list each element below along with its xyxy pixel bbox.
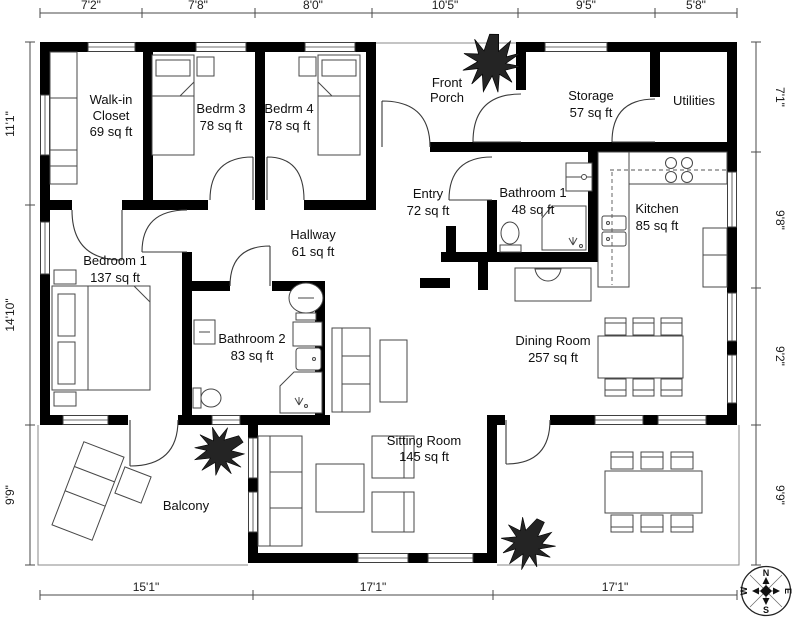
- sink-icon: [566, 163, 592, 191]
- room-label-bedrm3: Bedrm 3: [196, 101, 245, 116]
- dim-label: 9'5": [576, 0, 596, 12]
- room-area-bathroom1: 48 sq ft: [512, 202, 555, 217]
- room-label-porch: Front: [432, 75, 463, 90]
- patio-table-icon: [605, 452, 702, 532]
- room-label-bathroom1: Bathroom 1: [499, 185, 566, 200]
- dimension-right: 7'1" 9'8" 9'2" 9'9": [751, 42, 787, 565]
- side-table-icon: [115, 467, 151, 503]
- coffee-table-icon: [316, 464, 364, 512]
- room-area-entry: 72 sq ft: [407, 203, 450, 218]
- fridge-icon: [703, 228, 727, 287]
- room-label-porch: Porch: [430, 90, 464, 105]
- bed-icon-bedroom1: [52, 270, 150, 406]
- room-label-bedroom1: Bedroom 1: [83, 253, 147, 268]
- window: [196, 43, 246, 52]
- dim-label: 15'1": [133, 580, 160, 594]
- room-label-dining: Dining Room: [515, 333, 590, 348]
- window: [41, 222, 50, 274]
- door-bathroom1: [449, 157, 492, 200]
- bed-icon-bedrm4: [318, 55, 360, 155]
- compass-rose: N E S W: [739, 567, 793, 616]
- window: [63, 416, 108, 425]
- room-label-bedrm4: Bedrm 4: [264, 101, 313, 116]
- lounge-chair-icon: [52, 442, 124, 540]
- dim-label: 11'1": [3, 111, 17, 137]
- dim-label: 7'1": [773, 87, 787, 107]
- dimension-bottom: 15'1" 17'1" 17'1": [40, 580, 737, 600]
- cabinet-icon: [293, 322, 322, 346]
- room-area-bathroom2: 83 sq ft: [231, 348, 274, 363]
- room-area-sitting: 145 sq ft: [399, 449, 449, 464]
- dim-label: 9'9": [773, 485, 787, 505]
- dim-label: 7'8": [188, 0, 208, 12]
- sink-icon: [296, 348, 321, 370]
- door-patio: [506, 420, 550, 464]
- dim-label: 8'0": [303, 0, 323, 12]
- room-label-sitting: Sitting Room: [387, 433, 461, 448]
- bed-icon-bedrm3: [152, 55, 194, 155]
- room-area-bedroom1: 137 sq ft: [90, 270, 140, 285]
- door-bedroom1: [142, 210, 187, 252]
- door-storage: [473, 94, 521, 142]
- room-area-storage: 57 sq ft: [570, 105, 613, 120]
- armchair-icon: [372, 492, 414, 532]
- window: [305, 43, 355, 52]
- window: [658, 416, 706, 425]
- dim-label: 5'8": [686, 0, 706, 12]
- room-area-walkin: 69 sq ft: [90, 124, 133, 139]
- window: [728, 172, 737, 227]
- room-label-storage: Storage: [568, 88, 614, 103]
- dining-table-icon: [598, 318, 683, 396]
- room-area-bedrm4: 78 sq ft: [268, 118, 311, 133]
- door-front: [382, 101, 430, 147]
- desk-icon: [515, 268, 591, 301]
- sofa-icon-lounge: [332, 328, 370, 412]
- window: [595, 416, 643, 425]
- dim-label: 17'1": [602, 580, 629, 594]
- window: [41, 95, 50, 155]
- dim-label: 17'1": [360, 580, 387, 594]
- closet-shelves-icon: [50, 52, 77, 184]
- window: [249, 492, 258, 532]
- window: [358, 554, 408, 563]
- room-label-balcony: Balcony: [163, 498, 210, 513]
- compass-label-east: E: [783, 588, 793, 594]
- tv-stand-icon: [380, 340, 407, 402]
- dimension-top: 7'2" 7'8" 8'0" 10'5" 9'5" 5'8": [40, 0, 737, 18]
- door-balcony: [130, 420, 178, 466]
- door-utilities: [612, 99, 655, 142]
- dim-label: 14'10": [3, 298, 17, 331]
- tree-icon: [186, 419, 251, 484]
- window: [428, 554, 473, 563]
- window: [249, 438, 258, 478]
- floor-plan: 7'2" 7'8" 8'0" 10'5" 9'5" 5'8" 15'1" 17'…: [0, 0, 800, 619]
- nightstand-icon: [299, 57, 316, 76]
- dim-label: 7'2": [81, 0, 101, 12]
- room-label-walkin: Closet: [93, 108, 130, 123]
- door-bedrm4: [267, 157, 304, 200]
- room-area-bedrm3: 78 sq ft: [200, 118, 243, 133]
- dimension-left: 11'1" 14'10" 9'9": [3, 42, 35, 565]
- room-area-hallway: 61 sq ft: [292, 244, 335, 259]
- window: [545, 43, 607, 52]
- door-bedrm3: [210, 157, 253, 200]
- dim-label: 9'9": [3, 485, 17, 505]
- room-area-dining: 257 sq ft: [528, 350, 578, 365]
- door-bathroom2: [230, 246, 270, 286]
- dim-label: 9'8": [773, 210, 787, 230]
- dim-label: 9'2": [773, 346, 787, 366]
- compass-label-west: W: [739, 586, 749, 595]
- window: [212, 416, 240, 425]
- toilet-icon: [500, 222, 521, 252]
- room-label-utilities: Utilities: [673, 93, 715, 108]
- toilet-icon: [193, 388, 221, 408]
- room-area-kitchen: 85 sq ft: [636, 218, 679, 233]
- sofa-icon-sitting: [258, 436, 302, 546]
- room-label-hallway: Hallway: [290, 227, 336, 242]
- floor-plan-canvas: 7'2" 7'8" 8'0" 10'5" 9'5" 5'8" 15'1" 17'…: [0, 0, 800, 619]
- room-label-walkin: Walk-in: [90, 92, 133, 107]
- window: [728, 355, 737, 403]
- window: [728, 293, 737, 341]
- shower-icon: [280, 372, 322, 413]
- window: [88, 43, 135, 52]
- sink-icon: [194, 320, 215, 344]
- room-label-bathroom2: Bathroom 2: [218, 331, 285, 346]
- room-label-kitchen: Kitchen: [635, 201, 678, 216]
- tree-icon: [490, 506, 565, 581]
- dim-label: 10'5": [432, 0, 459, 12]
- room-label-entry: Entry: [413, 186, 444, 201]
- compass-label-north: N: [763, 568, 770, 578]
- compass-label-south: S: [763, 605, 769, 615]
- nightstand-icon: [197, 57, 214, 76]
